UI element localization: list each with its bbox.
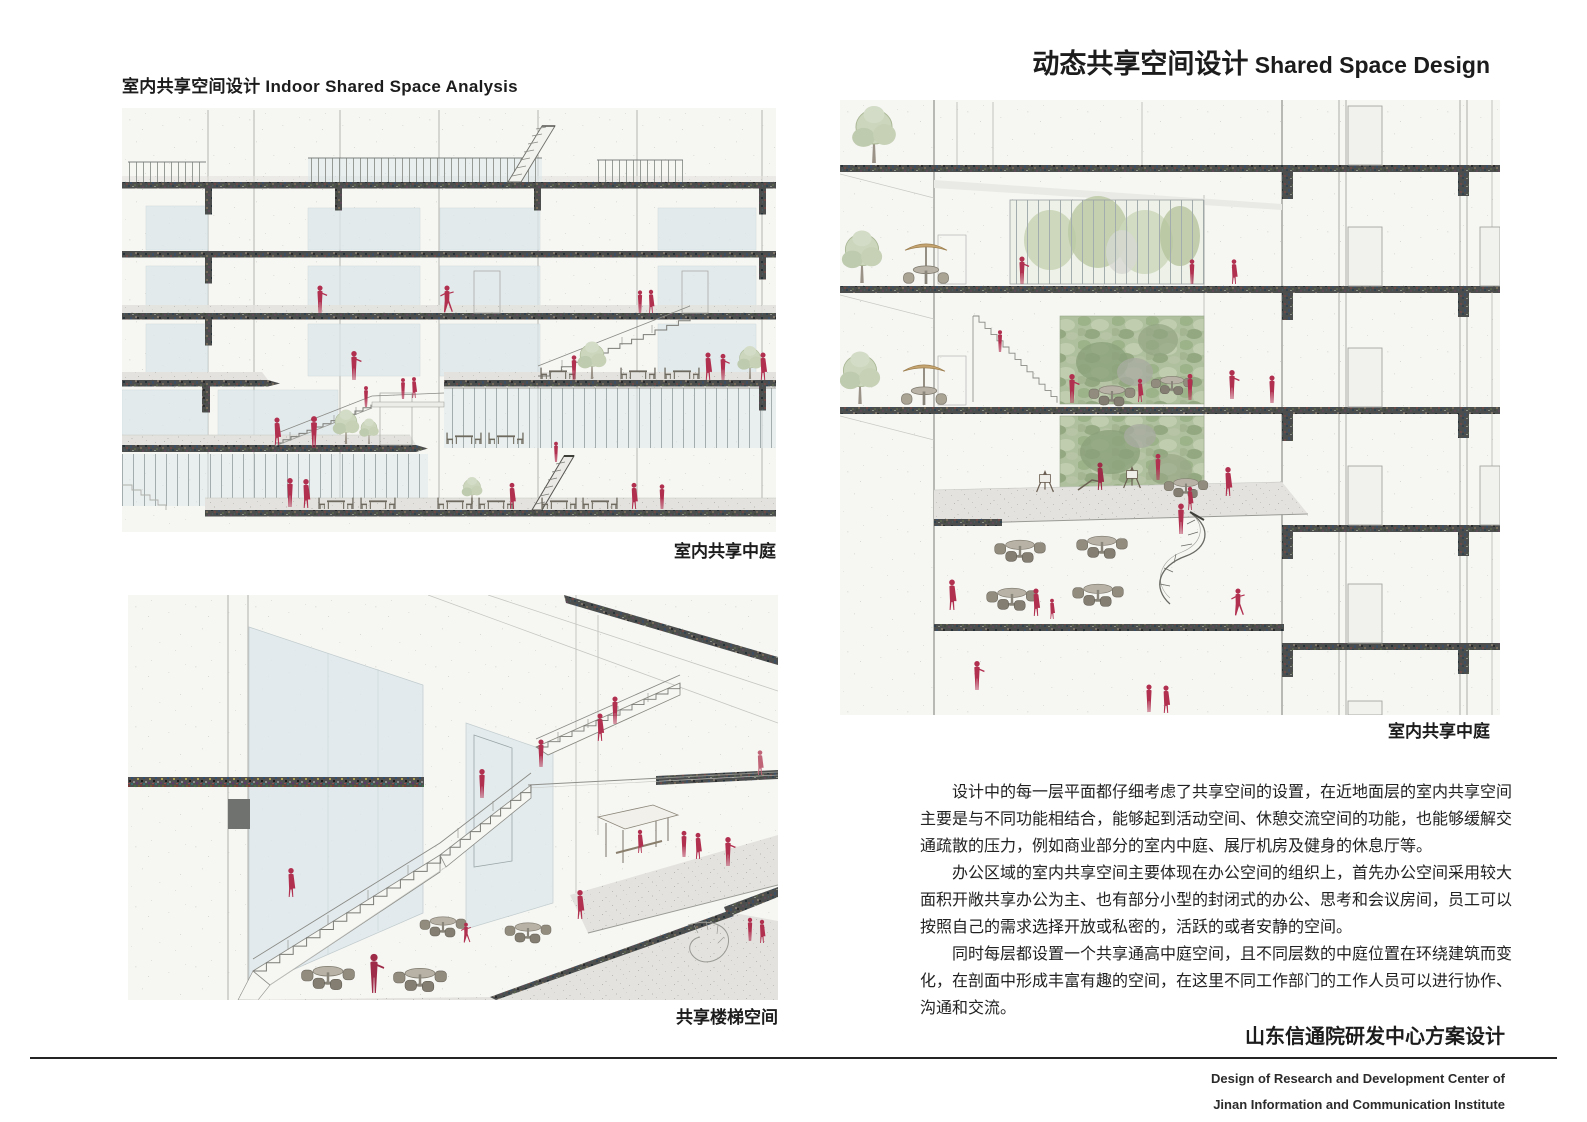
upper-glass-with-trees — [1010, 196, 1204, 284]
footer-divider — [30, 1057, 1557, 1059]
caption-indoor-atrium: 室内共享中庭 — [122, 537, 776, 562]
right-section-title: 动态共享空间设计 Shared Space Design — [1032, 42, 1490, 81]
caption-dynamic-atrium: 室内共享中庭 — [840, 717, 1490, 742]
design-description: 设计中的每一层平面都仔细考虑了共享空间的设置，在近地面层的室内共享空间主要是与不… — [920, 779, 1512, 1022]
body-paragraph-3: 同时每层都设置一个共享通高中庭空间，且不同层数的中庭位置在环绕建筑而变化，在剖面… — [920, 941, 1512, 1022]
project-subtitle-line2: Jinan Information and Communication Inst… — [1213, 1097, 1505, 1112]
body-paragraph-2: 办公区域的室内共享空间主要体现在办公空间的组织上，首先办公空间采用较大面积开敞共… — [920, 860, 1512, 941]
project-subtitle-line1: Design of Research and Development Cente… — [1211, 1071, 1505, 1086]
right-title-english: Shared Space Design — [1248, 52, 1490, 78]
left-section-title: 室内共享空间设计 Indoor Shared Space Analysis — [122, 72, 518, 97]
drawing-indoor-atrium-section — [122, 108, 776, 532]
body-paragraph-1: 设计中的每一层平面都仔细考虑了共享空间的设置，在近地面层的室内共享空间主要是与不… — [920, 779, 1512, 860]
right-title-chinese: 动态共享空间设计 — [1032, 49, 1248, 79]
caption-shared-stair: 共享楼梯空间 — [128, 1003, 778, 1028]
presentation-board: 室内共享空间设计 Indoor Shared Space Analysis 动态… — [0, 0, 1587, 1122]
drawing-dynamic-atrium-section — [840, 100, 1500, 715]
drawing-shared-stair-space — [128, 595, 778, 1000]
project-title: 山东信通院研发中心方案设计 — [1245, 1020, 1505, 1049]
